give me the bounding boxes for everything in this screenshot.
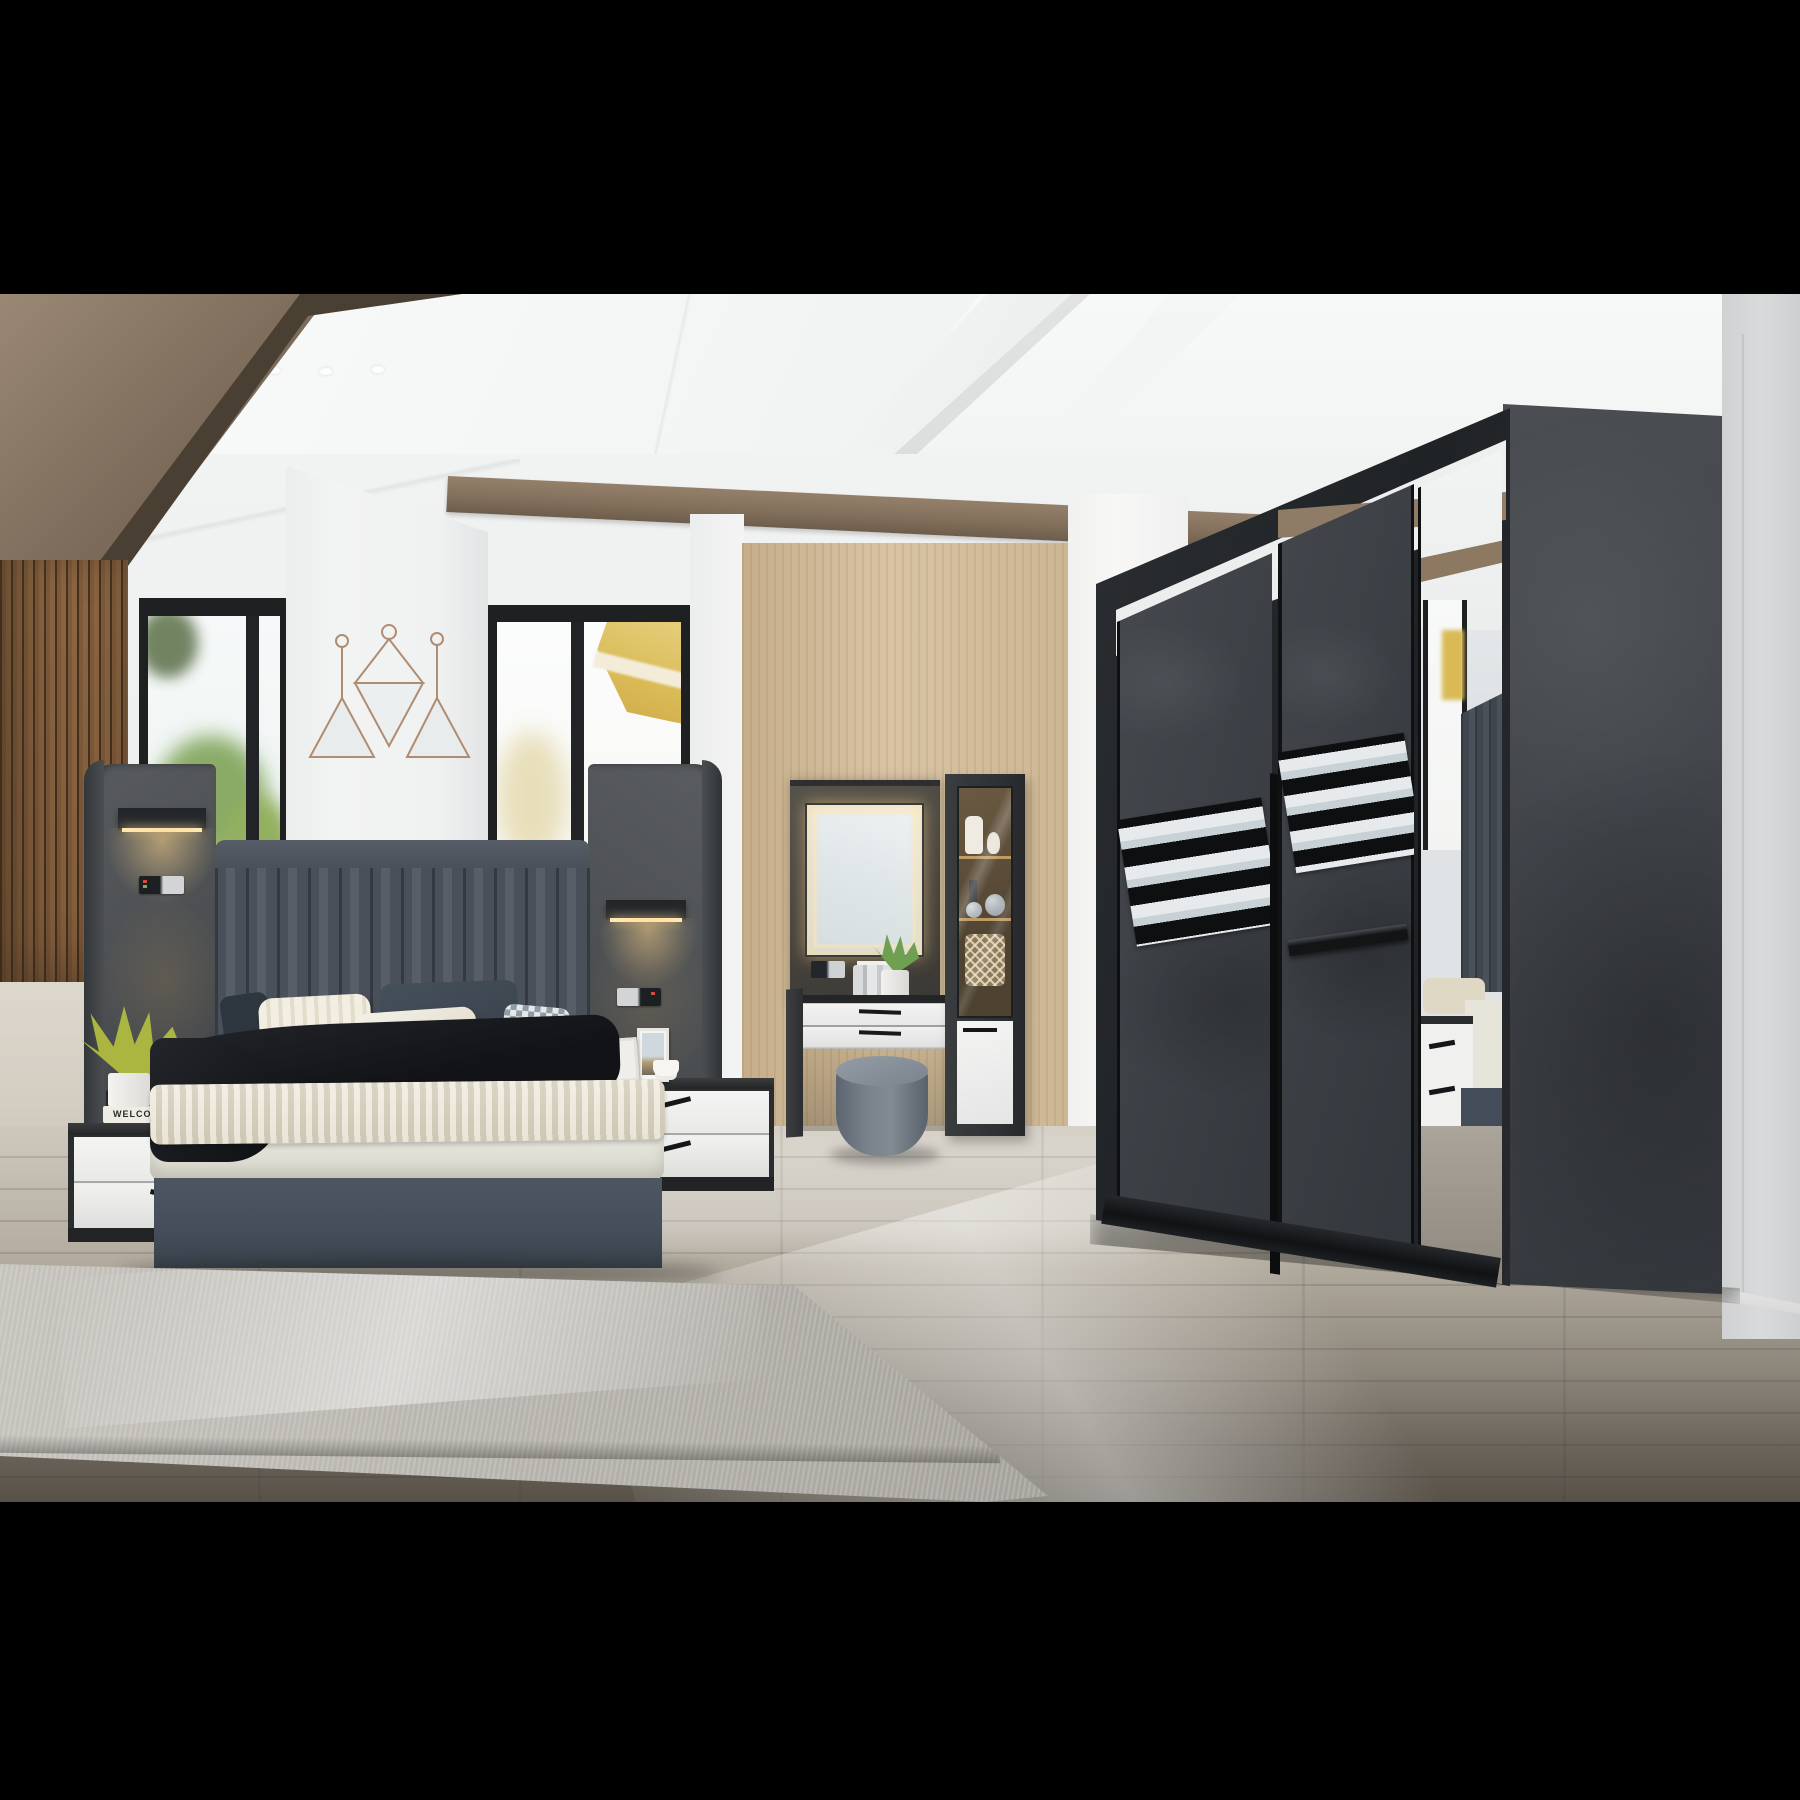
- reflection-window: [1423, 600, 1467, 850]
- cabinet-door-handle: [963, 1028, 997, 1032]
- plant-pot-left: [108, 1073, 150, 1107]
- wardrobe-door-right: [1278, 474, 1414, 1274]
- right-wall-corner-line: [1742, 334, 1744, 1294]
- switch-indicator-red: [143, 880, 147, 883]
- wing-right-switch-plates: [617, 988, 661, 1006]
- vanity-drawers: [800, 1003, 959, 1049]
- bedroom-photo: WELCOME: [0, 294, 1800, 1502]
- wardrobe-mirror-door: [1418, 440, 1502, 1300]
- vanity-plant-pot: [881, 970, 909, 998]
- decor-triangle-center: [355, 683, 423, 746]
- wing-left-edge-roll: [84, 760, 104, 1156]
- wing-left-switch-plates: [139, 876, 184, 894]
- vanity-handle-top: [859, 1009, 901, 1014]
- vanity-leg-panel: [786, 988, 803, 1137]
- cabinet-glass-door: [957, 786, 1013, 1018]
- wing-left-lamp-niche: [118, 808, 206, 830]
- display-cabinet: [945, 774, 1025, 1136]
- reflection-headboard: [1461, 692, 1502, 992]
- rug-front-edge-shadow: [0, 1435, 1000, 1463]
- foliage-dark-top: [148, 616, 198, 678]
- headboard-center-top-rail: [215, 840, 590, 870]
- decor-triangle-left: [310, 698, 374, 757]
- bed-base: [154, 1178, 662, 1268]
- ceiling-spotlight-2: [320, 368, 332, 375]
- door-right-handle-ledge: [1287, 924, 1408, 957]
- ceiling-crease-line: [430, 294, 910, 474]
- coffee-cup: [653, 1060, 679, 1076]
- decor-ring-right: [431, 633, 443, 645]
- switch-indicator-red-2: [651, 992, 655, 995]
- vanity-mirror-led-border: [814, 811, 915, 947]
- decor-ring-left: [336, 635, 348, 647]
- door-left-mirror-strips: [1117, 797, 1281, 946]
- letterbox-bottom: [0, 1502, 1800, 1800]
- screenshot-root: { "image": { "type": "interior-photograp…: [0, 0, 1800, 1800]
- switch-indicator-green: [143, 885, 147, 888]
- door-right-mirror-strips: [1277, 733, 1423, 874]
- stool-top: [836, 1056, 928, 1086]
- reflection-building: [1442, 630, 1464, 700]
- vanity-switches: [811, 961, 845, 978]
- letterbox-top: [0, 0, 1800, 294]
- right-wall: [1722, 294, 1800, 1339]
- wardrobe-side-panel: [1503, 404, 1723, 1300]
- wing-right-lamp-glow: [596, 918, 700, 1038]
- decor-ring-center: [382, 625, 396, 639]
- reflection-handle-2: [1429, 1086, 1455, 1095]
- cabinet-lower-door: [957, 1021, 1013, 1124]
- wing-right-lamp-niche: [606, 900, 686, 920]
- wardrobe-door-left: [1117, 540, 1272, 1250]
- cabinet-glass-reflection: [959, 788, 1011, 1016]
- ceiling-spotlight-3: [372, 366, 384, 373]
- decor-triangle-right: [407, 698, 469, 757]
- vanity-countertop: [795, 995, 957, 1003]
- triangle-mirror-decor: [296, 620, 486, 765]
- reflection-handle-1: [1429, 1040, 1455, 1049]
- knit-throw: [150, 1079, 666, 1144]
- vanity-handle-bottom: [859, 1030, 901, 1035]
- drawer-divider: [801, 1025, 958, 1027]
